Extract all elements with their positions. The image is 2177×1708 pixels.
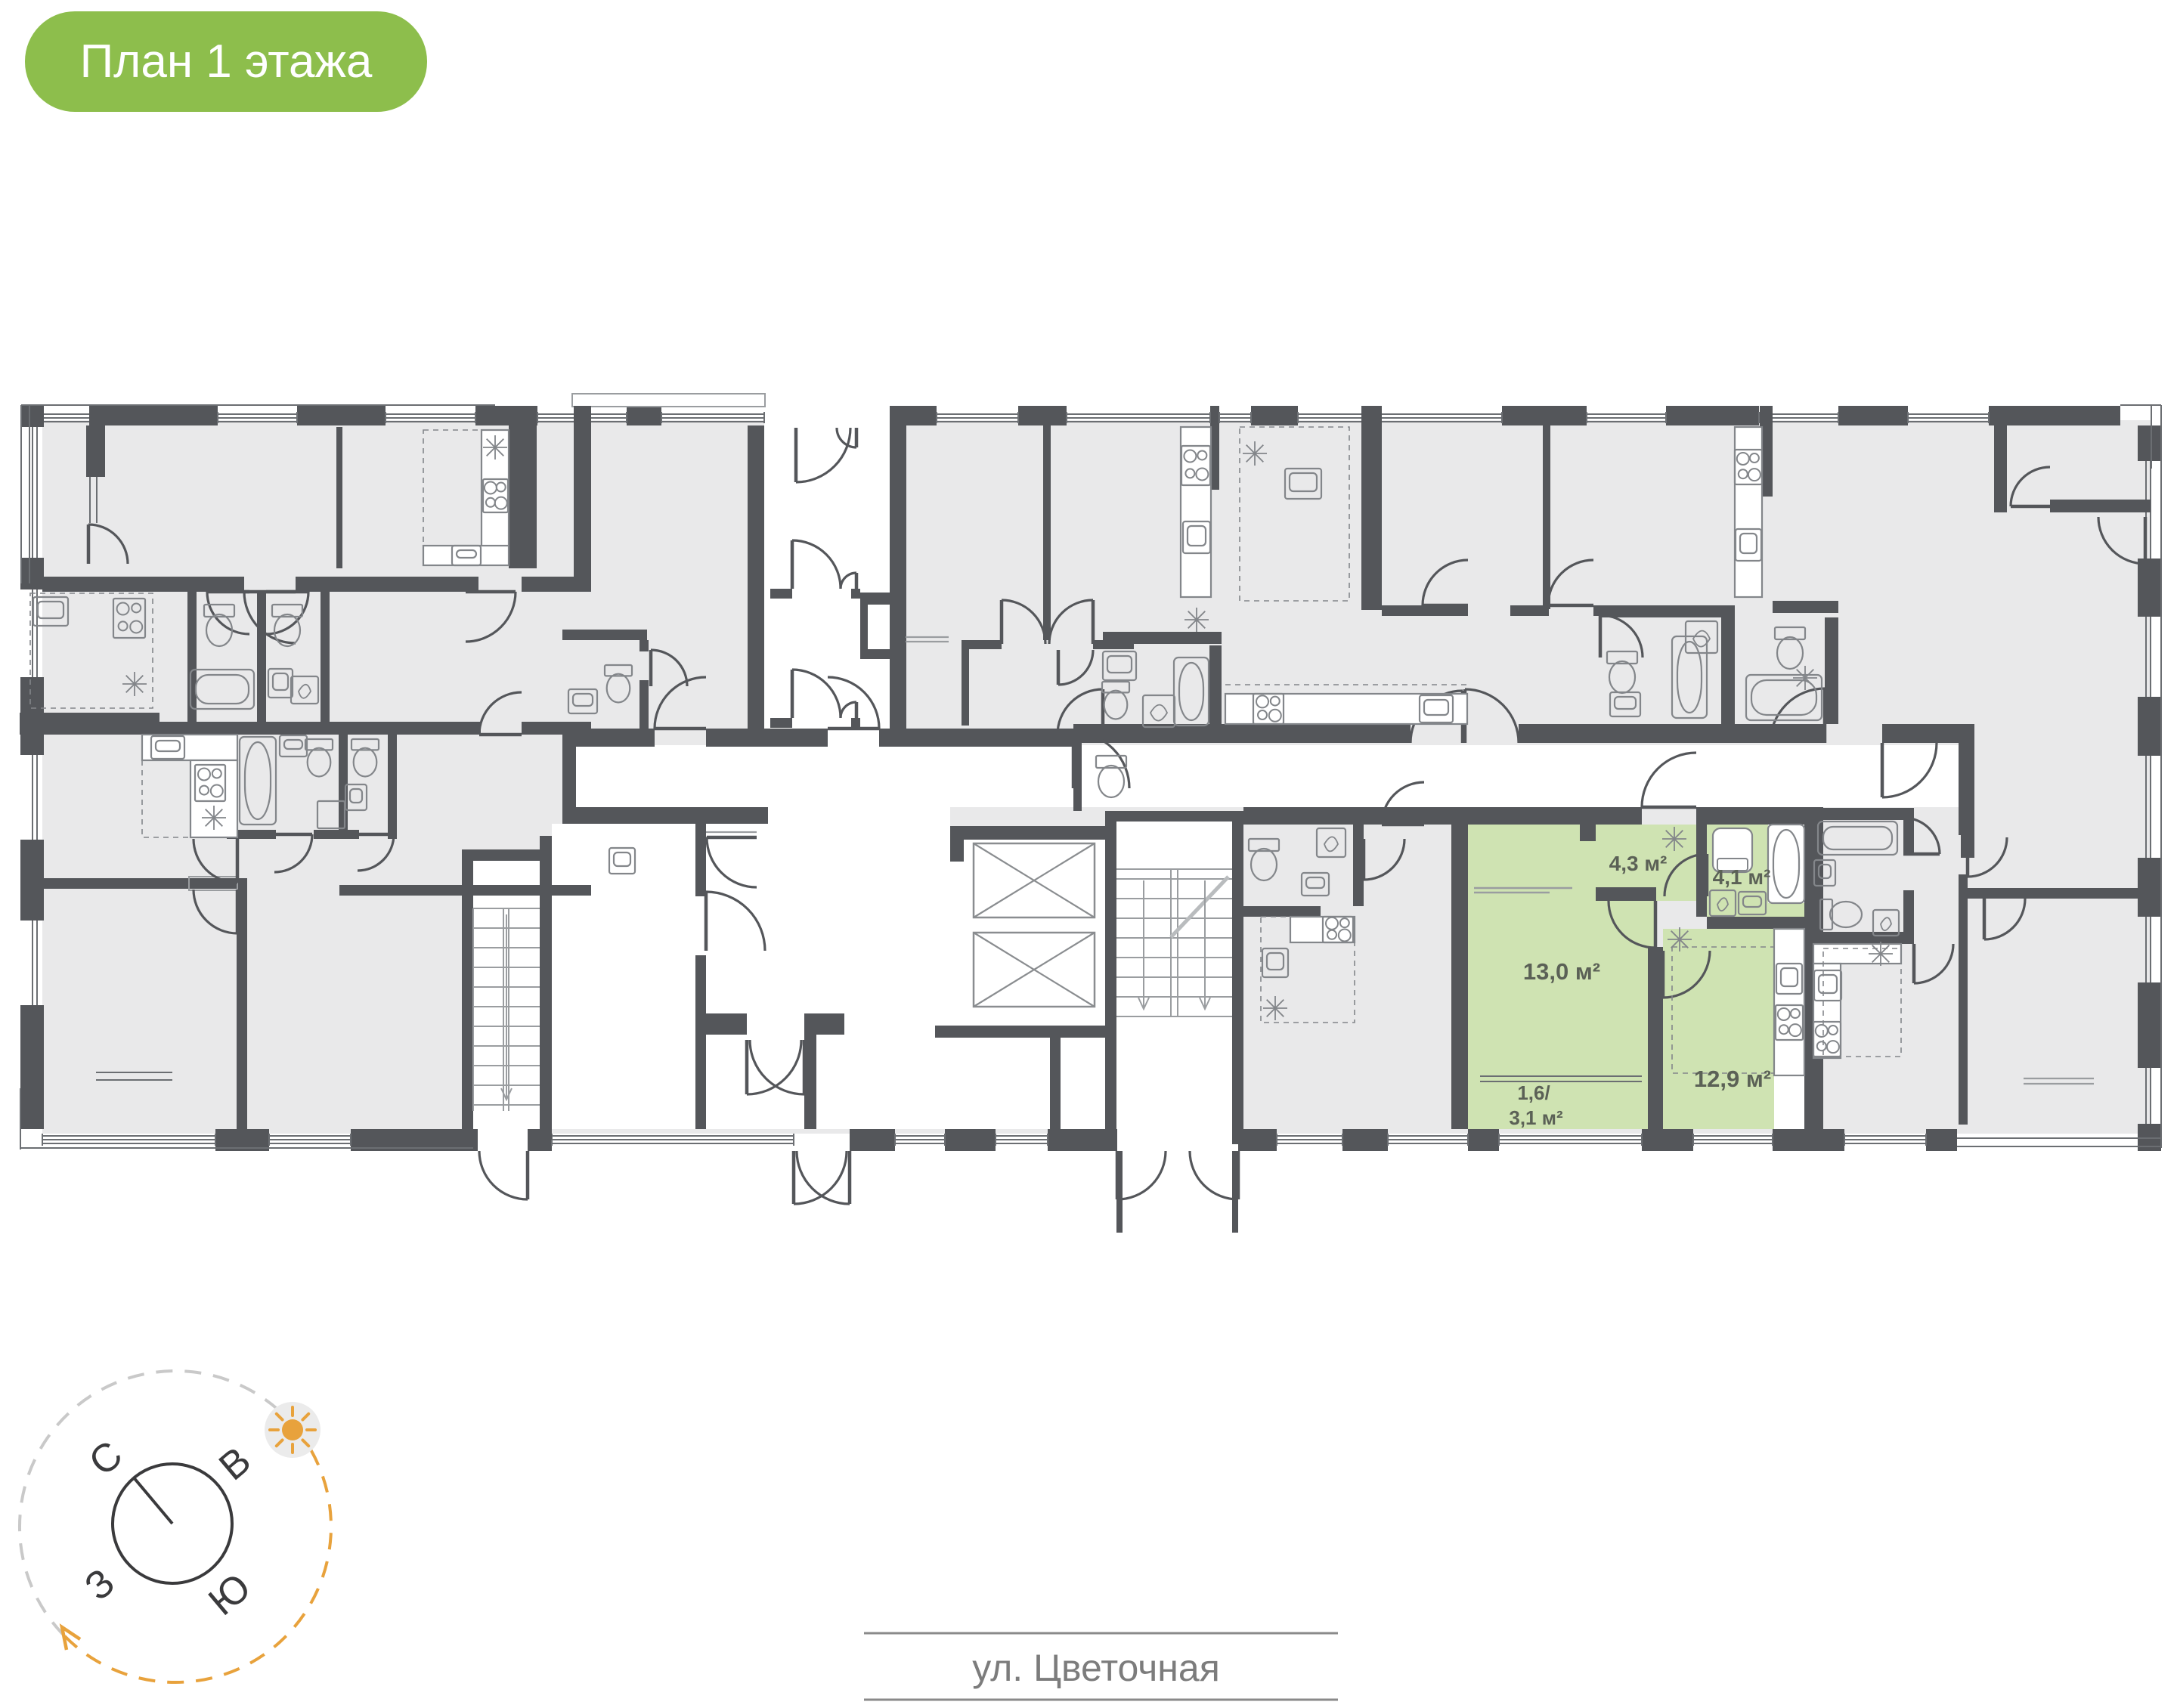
svg-text:3,1 м²: 3,1 м² xyxy=(1509,1106,1563,1129)
svg-text:Ю: Ю xyxy=(200,1565,259,1624)
svg-text:1,6/: 1,6/ xyxy=(1517,1081,1550,1104)
svg-text:ул. Цветочная: ул. Цветочная xyxy=(972,1647,1220,1689)
svg-text:4,3 м²: 4,3 м² xyxy=(1609,852,1668,875)
svg-text:13,0 м²: 13,0 м² xyxy=(1523,958,1600,985)
svg-text:12,9 м²: 12,9 м² xyxy=(1694,1066,1771,1092)
svg-text:В: В xyxy=(211,1439,259,1490)
svg-text:З: З xyxy=(76,1561,122,1610)
svg-text:План 1 этажа: План 1 этажа xyxy=(80,36,373,88)
svg-text:С: С xyxy=(81,1433,131,1485)
svg-text:4,1 м²: 4,1 м² xyxy=(1713,865,1771,889)
